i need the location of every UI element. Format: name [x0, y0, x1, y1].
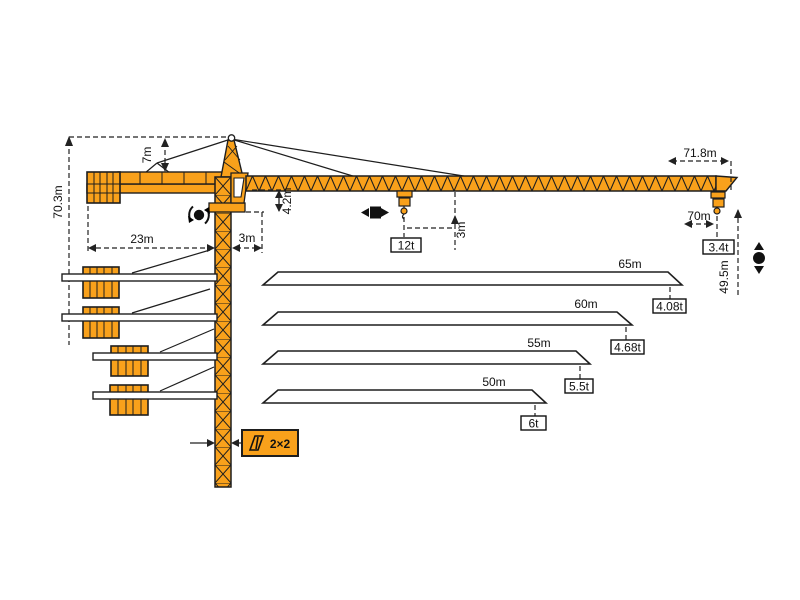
turntable: [209, 203, 245, 212]
jib-length-50m-label: 50m: [482, 375, 505, 389]
tip-trolley-hook: [711, 192, 725, 214]
jib-length-65m-label: 65m: [618, 257, 641, 271]
max-capacity-value: 12t: [398, 239, 415, 253]
mast-section-box: 2×2: [242, 430, 298, 456]
apex-pivot: [228, 135, 234, 141]
counterjib-radius-label: 23m: [130, 232, 153, 246]
tip-load-55m-value: 5.5t: [569, 380, 590, 394]
crane-diagram-svg: 65m 60m 55m 50m 12t 3.4t 4.08t 4.68t 5.5…: [0, 0, 800, 600]
jib-tip: [716, 176, 737, 191]
ballast-configurations: [62, 250, 217, 415]
counterweight-block: [87, 172, 120, 203]
jib-profile-50m: [263, 390, 546, 403]
top-tower-height-label: 7m: [140, 147, 154, 164]
counter-jib: [87, 172, 231, 203]
tip-load-60m-value: 4.68t: [614, 341, 641, 355]
jib-profile-55m: [263, 351, 590, 364]
jib-length-60m-label: 60m: [574, 297, 597, 311]
mast: [209, 177, 245, 487]
jib-length-55m-label: 55m: [527, 336, 550, 350]
slew-offset-label: 3m: [239, 231, 256, 245]
trolley-travel-icon: [361, 207, 389, 219]
tip-capacity-value: 3.4t: [708, 241, 729, 255]
jib-overall-length-label: 71.8m: [683, 146, 716, 160]
jib-variants: 65m 60m 55m 50m: [263, 257, 682, 403]
tip-load-50m-value: 6t: [528, 417, 539, 431]
jib-profile-65m: [263, 272, 682, 285]
jib-depth-label: 4.2m: [280, 188, 294, 215]
hoisting-icon: [753, 242, 765, 274]
mast-section-value: 2×2: [270, 437, 291, 451]
ballast-row-1: [62, 250, 217, 298]
slewing-icon: [188, 207, 210, 224]
hook-height-label: 49.5m: [717, 260, 731, 293]
tip-hook-ball: [714, 208, 720, 214]
main-jib: [246, 176, 737, 191]
total-height-label: 70.3m: [51, 185, 65, 218]
trolley-hook: [397, 191, 412, 219]
crane-specification-diagram: 65m 60m 55m 50m 12t 3.4t 4.08t 4.68t 5.5…: [0, 0, 800, 600]
counterjib-platform: [118, 172, 230, 184]
max-working-radius-label: 70m: [687, 209, 710, 223]
jib-profile-60m: [263, 312, 632, 325]
tip-load-65m-value: 4.08t: [656, 300, 683, 314]
trolley-height-offset-label: 3m: [454, 222, 468, 239]
hook-ball: [401, 208, 407, 214]
